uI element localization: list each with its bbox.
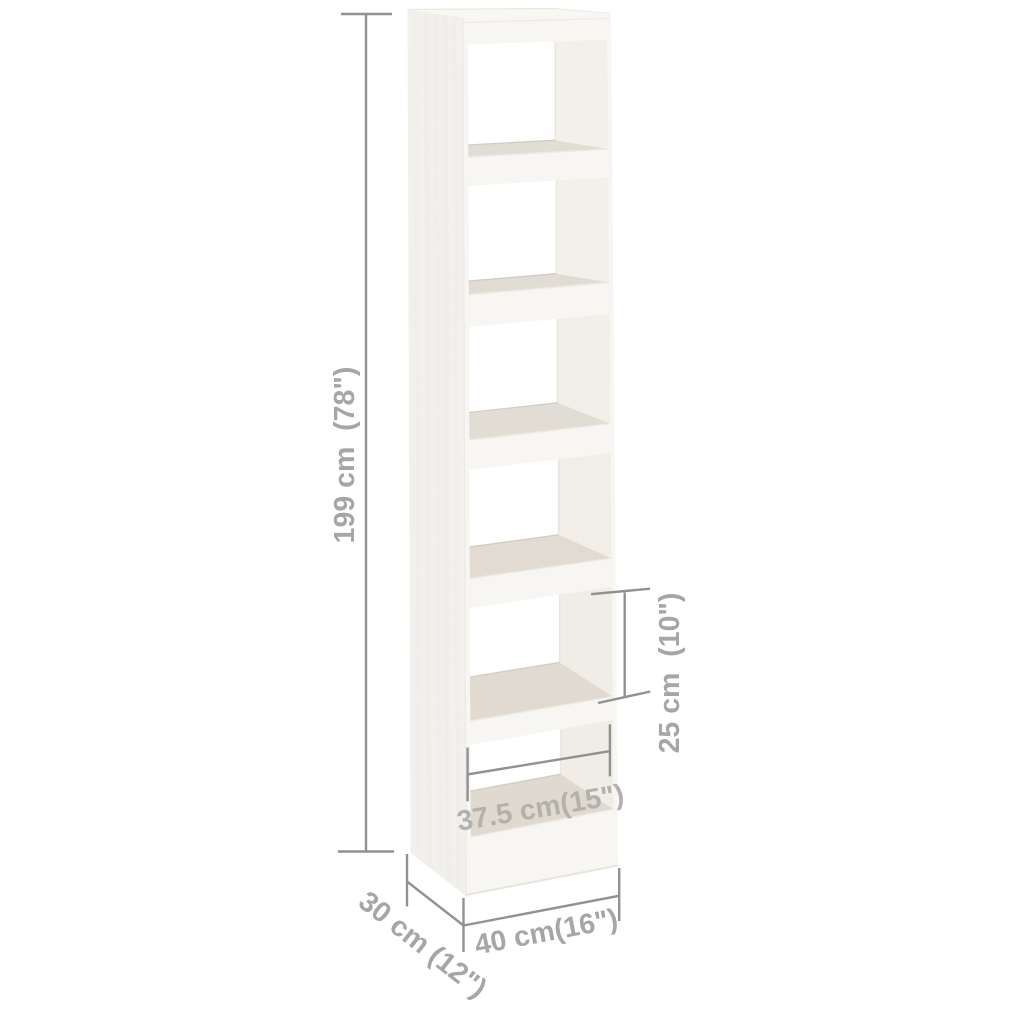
svg-text:199 cm (78"): 199 cm (78") bbox=[329, 367, 361, 544]
svg-text:25 cm (10"): 25 cm (10") bbox=[654, 593, 686, 754]
